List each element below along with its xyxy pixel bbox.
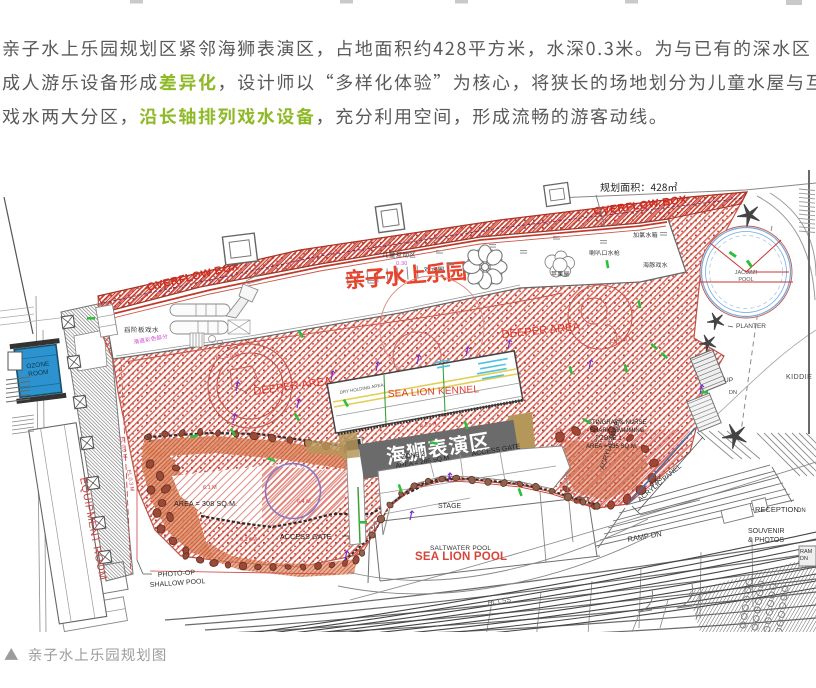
svg-text:ACCESS GATE: ACCESS GATE	[280, 534, 332, 541]
svg-text:SEA LION POOL: SEA LION POOL	[415, 551, 507, 563]
svg-text:KIDDIE: KIDDIE	[786, 374, 812, 381]
svg-text:RECEPTION: RECEPTION	[755, 505, 799, 514]
svg-text:AREA = 308 SQ.M.: AREA = 308 SQ.M.	[174, 501, 237, 508]
svg-text:RAM: RAM	[800, 549, 813, 555]
svg-text:DN: DN	[797, 508, 806, 514]
svg-text:UP: UP	[724, 377, 733, 384]
svg-text:DN: DN	[729, 390, 737, 396]
svg-text:STAGE: STAGE	[438, 503, 462, 510]
svg-text:DN: DN	[800, 556, 808, 562]
svg-text:8.1 6M: 8.1 6M	[240, 537, 257, 543]
svg-text:& PHOTOS: & PHOTOS	[748, 537, 784, 544]
svg-text:6.1 M: 6.1 M	[203, 485, 217, 491]
svg-text:PLANTER: PLANTER	[736, 323, 766, 330]
svg-text:6.4 M: 6.4 M	[297, 499, 311, 505]
svg-text:JACUZZI: JACUZZI	[735, 270, 758, 276]
svg-text:POOL: POOL	[738, 277, 753, 283]
svg-text:SOUVENIR: SOUVENIR	[748, 528, 785, 535]
